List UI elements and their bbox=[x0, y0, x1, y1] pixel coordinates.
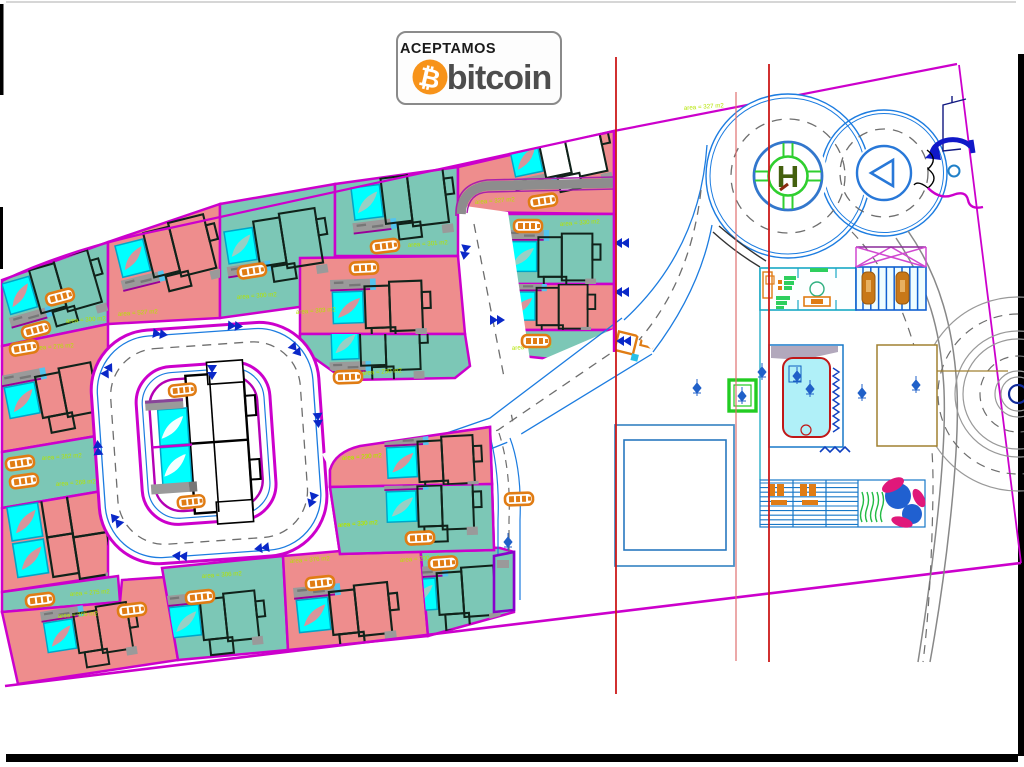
svg-text:bitcoin: bitcoin bbox=[447, 59, 551, 97]
svg-text:ACEPTAMOS: ACEPTAMOS bbox=[400, 41, 496, 57]
